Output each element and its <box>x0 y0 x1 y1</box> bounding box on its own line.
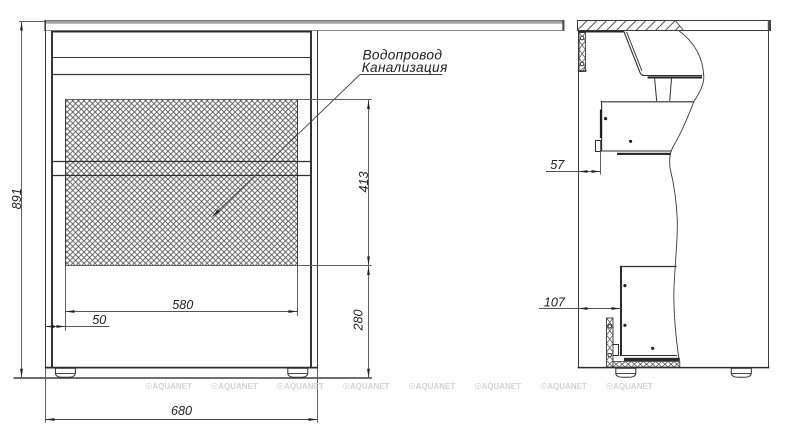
svg-text:☉AQUANET: ☉AQUANET <box>343 382 390 391</box>
svg-text:57: 57 <box>550 158 565 172</box>
svg-text:891: 891 <box>10 188 24 209</box>
svg-text:☉AQUANET: ☉AQUANET <box>606 382 653 391</box>
svg-text:☉AQUANET: ☉AQUANET <box>211 382 258 391</box>
svg-text:280: 280 <box>352 309 366 331</box>
svg-text:413: 413 <box>357 171 371 192</box>
svg-text:Канализация: Канализация <box>362 60 448 75</box>
svg-text:☉AQUANET: ☉AQUANET <box>409 382 456 391</box>
svg-text:☉AQUANET: ☉AQUANET <box>277 382 324 391</box>
svg-text:☉AQUANET: ☉AQUANET <box>474 382 521 391</box>
svg-text:680: 680 <box>171 404 192 418</box>
svg-text:☉AQUANET: ☉AQUANET <box>540 382 587 391</box>
svg-text:107: 107 <box>544 295 566 309</box>
svg-text:50: 50 <box>92 313 106 327</box>
svg-text:☉AQUANET: ☉AQUANET <box>145 382 192 391</box>
svg-text:580: 580 <box>172 298 193 312</box>
